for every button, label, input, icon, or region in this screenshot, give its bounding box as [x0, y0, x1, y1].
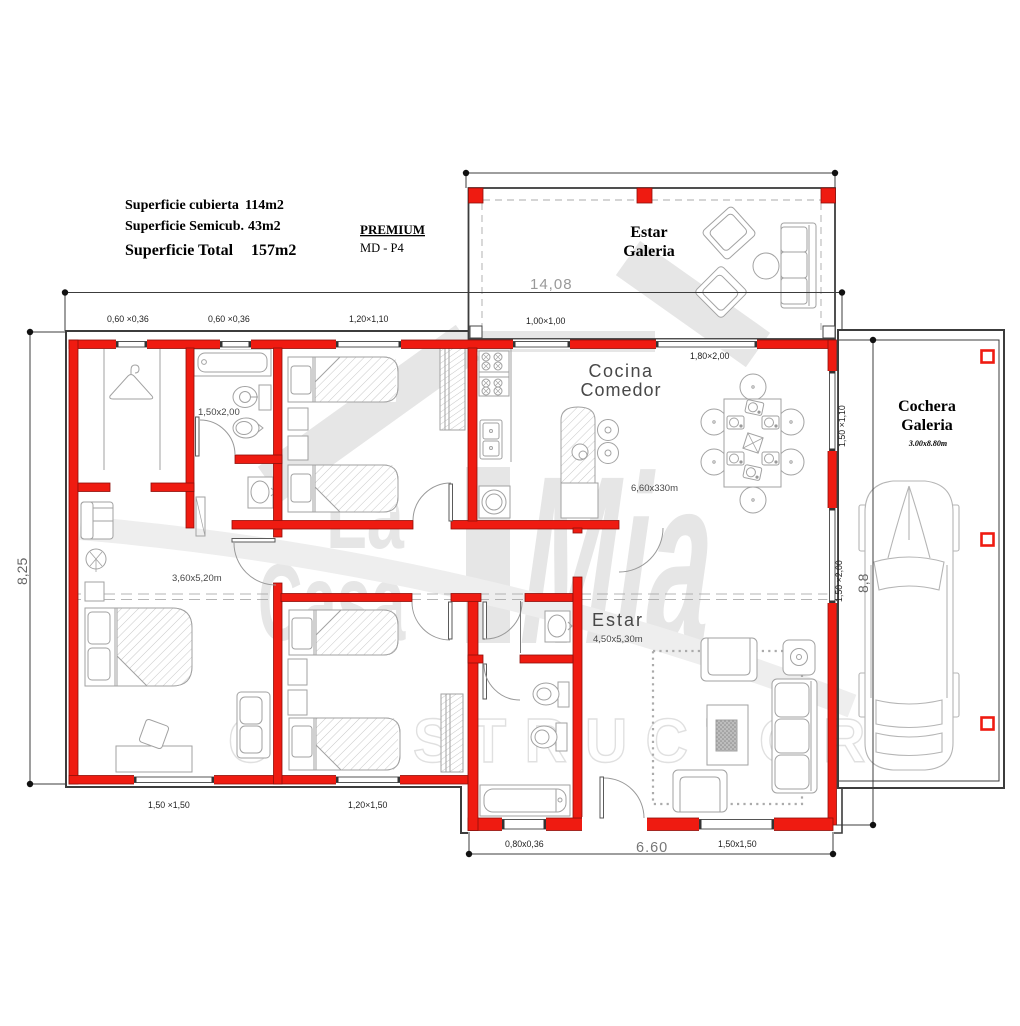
- svg-text:1,50x1,50: 1,50x1,50: [718, 839, 757, 849]
- svg-text:1,50 ×1,10: 1,50 ×1,10: [837, 405, 847, 447]
- svg-text:1,50 ×1,50: 1,50 ×1,50: [148, 800, 190, 810]
- svg-text:1,20×1,10: 1,20×1,10: [349, 314, 388, 324]
- svg-text:Cocina: Cocina: [588, 361, 653, 381]
- svg-text:Estar: Estar: [630, 224, 667, 241]
- svg-text:Estar: Estar: [592, 610, 644, 630]
- svg-text:157m2: 157m2: [251, 242, 296, 259]
- svg-text:114m2: 114m2: [245, 198, 284, 213]
- svg-text:8,8: 8,8: [855, 573, 871, 593]
- svg-text:Galeria: Galeria: [901, 417, 953, 434]
- svg-text:MD - P4: MD - P4: [360, 241, 405, 255]
- svg-text:0,60 ×0,36: 0,60 ×0,36: [208, 314, 250, 324]
- svg-text:0,60 ×0,36: 0,60 ×0,36: [107, 314, 149, 324]
- svg-text:Superficie Semicub.: Superficie Semicub.: [125, 219, 244, 234]
- svg-text:4,50x5,30m: 4,50x5,30m: [593, 634, 643, 645]
- svg-text:1,20×1,50: 1,20×1,50: [348, 800, 387, 810]
- svg-text:1,80×2,00: 1,80×2,00: [690, 351, 729, 361]
- svg-text:3,60x5,20m: 3,60x5,20m: [172, 573, 222, 584]
- svg-text:1,50x2,00: 1,50x2,00: [198, 407, 240, 418]
- svg-text:PREMIUM: PREMIUM: [360, 222, 425, 237]
- svg-text:1,00×1,00: 1,00×1,00: [526, 316, 565, 326]
- svg-text:6.60: 6.60: [636, 840, 668, 856]
- svg-text:1,50 ×2,00: 1,50 ×2,00: [834, 560, 844, 602]
- svg-text:Galeria: Galeria: [623, 243, 675, 260]
- svg-text:6,60x330m: 6,60x330m: [631, 483, 678, 494]
- svg-text:Superficie Total: Superficie Total: [125, 242, 234, 259]
- svg-text:14,08: 14,08: [530, 276, 573, 293]
- svg-text:Comedor: Comedor: [580, 380, 661, 400]
- svg-text:43m2: 43m2: [248, 219, 281, 234]
- svg-text:Superficie cubierta: Superficie cubierta: [125, 198, 239, 213]
- svg-text:0,80x0,36: 0,80x0,36: [505, 839, 544, 849]
- svg-text:3.00x8.80m: 3.00x8.80m: [908, 439, 947, 448]
- svg-text:Cochera: Cochera: [898, 398, 956, 415]
- svg-text:8,25: 8,25: [14, 558, 30, 585]
